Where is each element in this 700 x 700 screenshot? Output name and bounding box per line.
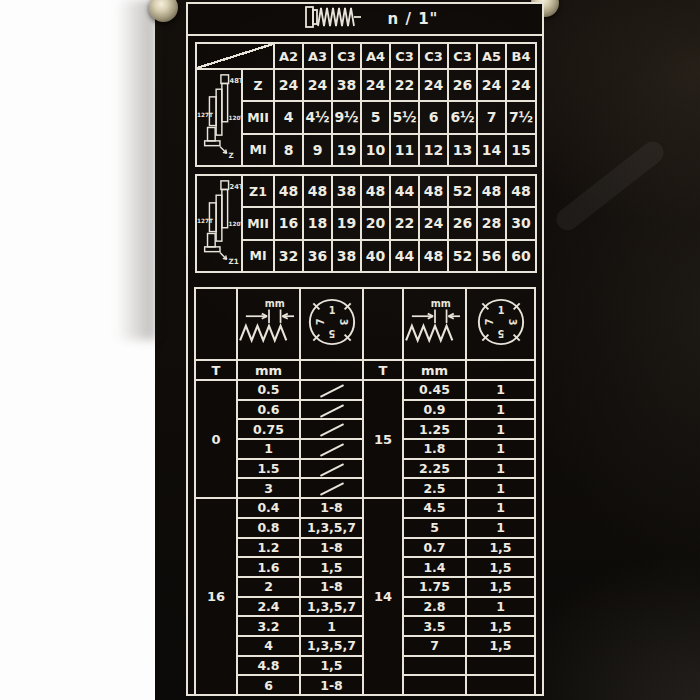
svg-text:120T: 120T <box>229 221 241 227</box>
plate-title-row: n / 1" <box>188 4 542 36</box>
gear-value-cell: 15 <box>506 134 536 166</box>
gear-value-cell: 38 <box>332 240 361 272</box>
pitch-mm-cell: 1.25 <box>403 419 466 439</box>
thread-pitch-table: mm 1 3 5 7 mm 1 3 5 7 TmmTmm00.5150.4510… <box>188 287 542 696</box>
dial-position-cell: 1,5 <box>466 636 535 656</box>
gear-column-header: C3 <box>419 43 448 69</box>
thread-header-cell <box>466 360 535 380</box>
gear-value-cell: 6 <box>419 101 448 133</box>
svg-text:24T: 24T <box>230 183 241 191</box>
gear-value-cell: 24 <box>361 69 390 101</box>
dial-position-cell: 1 <box>466 380 535 400</box>
svg-text:5: 5 <box>328 328 335 339</box>
gear-row-label: Z <box>242 69 274 101</box>
dial-position-cell: 1 <box>466 518 535 538</box>
pitch-mm-cell: 0.75 <box>237 419 300 439</box>
dial-position-cell: 1,5 <box>300 656 363 676</box>
pitch-mm-cell: 1.4 <box>403 557 466 577</box>
gear-value-cell: 52 <box>448 175 477 207</box>
thread-data-row: 00.5150.451 <box>195 380 535 400</box>
svg-text:7: 7 <box>483 319 494 326</box>
dial-position-cell: 1-8 <box>300 675 363 695</box>
gear-value-cell: 44 <box>390 175 419 207</box>
gear-value-cell: 12 <box>419 134 448 166</box>
gear-value-cell: 26 <box>448 207 477 239</box>
dial-position-cell: 1 <box>466 459 535 479</box>
dial-position-cell: 1 <box>300 616 363 636</box>
pitch-mm-cell: 0.7 <box>403 538 466 558</box>
gear-value-cell: 24 <box>274 69 303 101</box>
gear-value-cell: 22 <box>390 207 419 239</box>
dial-position-cell: 1 <box>466 597 535 617</box>
pitch-mm-cell: 0.6 <box>237 400 300 420</box>
dial-position-cell: 1,5 <box>466 577 535 597</box>
pitch-mm-cell: 1.8 <box>403 439 466 459</box>
gear-diagram-cell: 24T 127T 120T Z1 <box>196 175 242 272</box>
pitch-mm-cell <box>403 656 466 676</box>
pitch-mm-cell: 4.5 <box>403 498 466 518</box>
gear-table-block-1: A2A3C3A4C3C3C3A5B4 48T 127T 120T Z Z2424… <box>195 42 537 167</box>
gear-value-cell: 18 <box>303 207 332 239</box>
gear-row-label: MI <box>242 134 274 166</box>
t-group-cell: 14 <box>363 498 403 695</box>
gear-value-cell: 5½ <box>390 101 419 133</box>
feed-rate-label: n / 1" <box>388 10 439 28</box>
gear-value-cell: 9½ <box>332 101 361 133</box>
svg-text:48T: 48T <box>230 77 241 85</box>
pitch-mm-cell: 0.9 <box>403 400 466 420</box>
dial-position-cell <box>300 478 363 498</box>
pitch-mm-cell: 1 <box>237 439 300 459</box>
gear-value-cell: 6½ <box>448 101 477 133</box>
slash-mark <box>319 482 343 496</box>
corner-cell <box>196 43 274 69</box>
t-column-empty-cell <box>195 288 237 360</box>
dial-position-cell: 1,5 <box>300 557 363 577</box>
svg-text:127T: 127T <box>197 218 213 224</box>
gear-value-cell: 48 <box>477 175 506 207</box>
gear-value-cell: 7½ <box>506 101 536 133</box>
bolt-thread-icon <box>304 4 362 30</box>
gear-column-header: A5 <box>477 43 506 69</box>
gear-value-cell: 24 <box>419 207 448 239</box>
svg-text:7: 7 <box>314 319 325 326</box>
thread-dial-icon: 1 3 5 7 <box>306 296 358 348</box>
pitch-mm-cell: 5 <box>403 518 466 538</box>
pitch-mm-cell <box>403 675 466 695</box>
gear-row: MII44½9½55½66½77½ <box>196 101 536 133</box>
dial-position-cell <box>300 419 363 439</box>
gear-value-cell: 24 <box>506 69 536 101</box>
gear-value-cell: 24 <box>419 69 448 101</box>
svg-text:127T: 127T <box>197 112 213 118</box>
gear-value-cell: 26 <box>448 69 477 101</box>
dial-position-cell: 1 <box>466 400 535 420</box>
gear-change-tables: A2A3C3A4C3C3C3A5B4 48T 127T 120T Z Z2424… <box>195 42 535 273</box>
svg-text:mm: mm <box>431 298 451 309</box>
pitch-mm-cell: 1.75 <box>403 577 466 597</box>
pitch-mm-cell: 0.45 <box>403 380 466 400</box>
svg-text:5: 5 <box>497 328 504 339</box>
gear-column-header: C3 <box>448 43 477 69</box>
dial-position-cell: 1,5 <box>466 538 535 558</box>
product-photo: n / 1" A2A3C3A4C3C3C3A5B4 48T 127T 120T … <box>0 0 700 700</box>
thread-data-row: 160.41-8144.51 <box>195 498 535 518</box>
svg-text:120T: 120T <box>229 115 241 121</box>
t-group-cell: 16 <box>195 498 237 695</box>
gear-value-cell: 48 <box>419 240 448 272</box>
gear-value-cell: 38 <box>332 69 361 101</box>
slash-mark <box>319 463 343 477</box>
pitch-mm-cell: 7 <box>403 636 466 656</box>
dial-position-cell: 1 <box>466 419 535 439</box>
gear-value-cell: 52 <box>448 240 477 272</box>
gear-value-cell: 4½ <box>303 101 332 133</box>
gear-train-diagram-icon: 24T 127T 120T Z1 <box>197 176 241 268</box>
thread-dial-icon: 1 3 5 7 <box>475 296 527 348</box>
pitch-mm-cell: 1.6 <box>237 557 300 577</box>
dial-position-cell: 1,5 <box>466 557 535 577</box>
gear-value-cell: 10 <box>361 134 390 166</box>
thread-header-cell: mm <box>403 360 466 380</box>
slash-mark <box>319 384 343 398</box>
pitch-mm-cell: 4 <box>237 636 300 656</box>
gear-value-cell: 14 <box>477 134 506 166</box>
gear-value-cell: 19 <box>332 134 361 166</box>
pitch-mm-cell: 4.8 <box>237 656 300 676</box>
gear-value-cell: 48 <box>274 175 303 207</box>
gear-value-cell: 5 <box>361 101 390 133</box>
dial-position-cell <box>300 380 363 400</box>
slash-mark <box>319 404 343 418</box>
dial-position-cell <box>300 439 363 459</box>
slash-mark <box>319 443 343 457</box>
gear-row: MI8919101112131415 <box>196 134 536 166</box>
thread-icon-row: mm 1 3 5 7 mm 1 3 5 7 <box>195 288 535 360</box>
gear-diagram-cell: 48T 127T 120T Z <box>196 69 242 166</box>
thread-header-cell: mm <box>237 360 300 380</box>
svg-text:1: 1 <box>328 305 335 316</box>
dial-position-cell: 1,3,5,7 <box>300 636 363 656</box>
metric-pitch-icon: mm <box>238 296 300 348</box>
gear-value-cell: 11 <box>390 134 419 166</box>
gear-row: 48T 127T 120T Z Z242438242224262424 <box>196 69 536 101</box>
shadow <box>116 0 156 340</box>
pitch-mm-cell: 0.8 <box>237 518 300 538</box>
pitch-mm-cell: 3.2 <box>237 616 300 636</box>
gear-value-cell: 36 <box>303 240 332 272</box>
dial-position-cell: 1-8 <box>300 577 363 597</box>
dial-position-cell: 1,3,5,7 <box>300 518 363 538</box>
dial-position-cell: 1,5 <box>466 616 535 636</box>
gear-value-cell: 60 <box>506 240 536 272</box>
pitch-mm-cell: 2.8 <box>403 597 466 617</box>
gear-value-cell: 56 <box>477 240 506 272</box>
thread-header-cell: T <box>195 360 237 380</box>
gear-row-label: MI <box>242 240 274 272</box>
dial-position-cell <box>300 459 363 479</box>
thread-header-cell <box>300 360 363 380</box>
gear-value-cell: 48 <box>361 175 390 207</box>
slash-mark <box>319 423 343 437</box>
gear-column-header: A4 <box>361 43 390 69</box>
gear-value-cell: 32 <box>274 240 303 272</box>
gear-value-cell: 48 <box>303 175 332 207</box>
gear-column-header: C3 <box>390 43 419 69</box>
dial-position-cell: 1,3,5,7 <box>300 597 363 617</box>
gear-row-label: Z1 <box>242 175 274 207</box>
gear-value-cell: 4 <box>274 101 303 133</box>
gear-column-header: A3 <box>303 43 332 69</box>
svg-text:1: 1 <box>497 305 504 316</box>
pitch-mm-cell: 2.25 <box>403 459 466 479</box>
pitch-mm-cell: 1.2 <box>237 538 300 558</box>
gear-value-cell: 28 <box>477 207 506 239</box>
gear-value-cell: 13 <box>448 134 477 166</box>
gear-value-cell: 44 <box>390 240 419 272</box>
pitch-mm-cell: 2.5 <box>403 478 466 498</box>
gear-value-cell: 24 <box>303 69 332 101</box>
svg-text:3: 3 <box>507 319 518 326</box>
pitch-mm-cell: 2 <box>237 577 300 597</box>
dial-position-cell: 1 <box>466 478 535 498</box>
pitch-mm-cell: 0.5 <box>237 380 300 400</box>
gear-train-diagram-icon: 48T 127T 120T Z <box>197 70 241 162</box>
metric-pitch-icon: mm <box>404 296 466 348</box>
dial-position-cell: 1-8 <box>300 498 363 518</box>
svg-text:Z: Z <box>229 151 234 160</box>
thread-dial-icon-cell: 1 3 5 7 <box>300 288 363 360</box>
pitch-mm-cell: 6 <box>237 675 300 695</box>
t-group-cell: 15 <box>363 380 403 498</box>
gear-value-cell: 22 <box>390 69 419 101</box>
thread-dial-icon-cell: 1 3 5 7 <box>466 288 535 360</box>
gear-value-cell: 9 <box>303 134 332 166</box>
dial-position-cell <box>466 675 535 695</box>
gear-value-cell: 8 <box>274 134 303 166</box>
dial-position-cell: 1 <box>466 439 535 459</box>
gear-value-cell: 19 <box>332 207 361 239</box>
metric-pitch-icon-cell: mm <box>403 288 466 360</box>
gear-value-cell: 38 <box>332 175 361 207</box>
gear-value-cell: 40 <box>361 240 390 272</box>
svg-text:mm: mm <box>265 298 285 309</box>
gear-value-cell: 48 <box>419 175 448 207</box>
pitch-mm-cell: 2.4 <box>237 597 300 617</box>
gear-value-cell: 20 <box>361 207 390 239</box>
thread-header-cell: T <box>363 360 403 380</box>
gear-header-row: A2A3C3A4C3C3C3A5B4 <box>196 43 536 69</box>
svg-text:Z1: Z1 <box>229 257 239 266</box>
gear-value-cell: 30 <box>506 207 536 239</box>
svg-text:3: 3 <box>338 319 349 326</box>
gear-row: MI323638404448525660 <box>196 240 536 272</box>
gear-row: 24T 127T 120T Z1 Z1484838484448524848 <box>196 175 536 207</box>
pitch-mm-cell: 3.5 <box>403 616 466 636</box>
pitch-mm-cell: 1.5 <box>237 459 300 479</box>
gear-row-label: MII <box>242 207 274 239</box>
dial-position-cell: 1 <box>466 498 535 518</box>
bolt-thread-icon <box>304 4 362 34</box>
t-group-cell: 0 <box>195 380 237 498</box>
gear-value-cell: 48 <box>506 175 536 207</box>
t-column-empty-cell <box>363 288 403 360</box>
data-plate: n / 1" A2A3C3A4C3C3C3A5B4 48T 127T 120T … <box>186 2 544 696</box>
dial-position-cell <box>466 656 535 676</box>
gear-value-cell: 16 <box>274 207 303 239</box>
gear-value-cell: 7 <box>477 101 506 133</box>
gear-row-label: MII <box>242 101 274 133</box>
gear-table-block-2: 24T 127T 120T Z1 Z1484838484448524848MII… <box>195 174 537 273</box>
thread-header-row: TmmTmm <box>195 360 535 380</box>
gear-column-header: A2 <box>274 43 303 69</box>
dial-position-cell <box>300 400 363 420</box>
thread-table: mm 1 3 5 7 mm 1 3 5 7 TmmTmm00.5150.4510… <box>194 287 536 696</box>
dial-position-cell: 1-8 <box>300 538 363 558</box>
pitch-mm-cell: 0.4 <box>237 498 300 518</box>
gear-row: MII161819202224262830 <box>196 207 536 239</box>
gear-column-header: B4 <box>506 43 536 69</box>
pitch-mm-cell: 3 <box>237 478 300 498</box>
gear-column-header: C3 <box>332 43 361 69</box>
gear-value-cell: 24 <box>477 69 506 101</box>
metric-pitch-icon-cell: mm <box>237 288 300 360</box>
